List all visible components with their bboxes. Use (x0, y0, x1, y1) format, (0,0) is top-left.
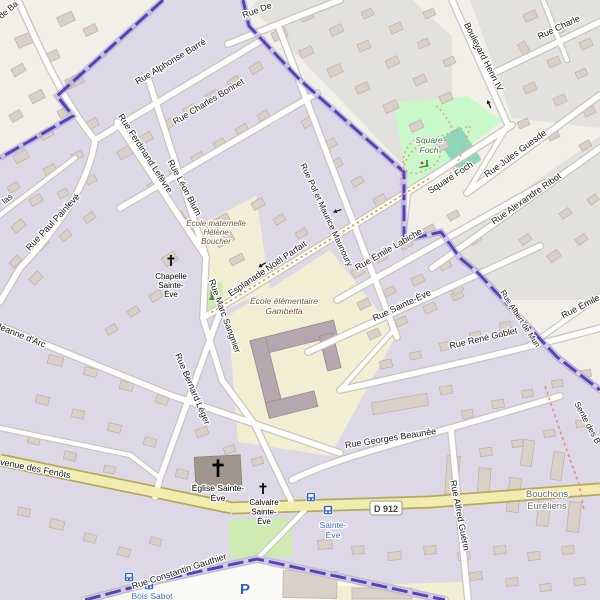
building (506, 577, 519, 586)
ecole-elementaire-label-line: École élémentaire (250, 296, 318, 306)
building (512, 439, 524, 447)
building (562, 545, 575, 554)
ecole-elementaire-label-line: Gambetta (265, 306, 303, 316)
building (461, 409, 473, 418)
locality-bouchons-eureliens-line: Euréliens (527, 501, 567, 512)
square-foch-park-label-line: Foch (420, 145, 439, 155)
building (492, 399, 505, 409)
bus-stop-bois-sabot-label: Bois Sabot (131, 591, 173, 600)
parking-label-line: P (240, 581, 250, 598)
ecole-maternelle-label-line: École maternelle (186, 219, 246, 228)
calvaire-sainte-eve-label-line: Calvaire (249, 498, 279, 507)
building (480, 447, 493, 457)
bus-stop-icon (323, 505, 333, 515)
building (574, 577, 586, 585)
building (522, 389, 534, 397)
building (544, 429, 556, 437)
building (494, 545, 507, 554)
ecole-maternelle-label-line: Hélène (203, 228, 229, 237)
square-foch-park-label-line: Square (415, 135, 443, 145)
map-svg[interactable]: D 912 Rue Alphonse BarréRue Charles Bonn… (0, 0, 600, 600)
building (388, 552, 402, 561)
calvaire-sainte-eve-label-line: Sainte- (251, 508, 277, 517)
ecole-maternelle-label-line: Boucher (201, 237, 231, 246)
building (352, 546, 365, 555)
bus-stop-sainte-eve-label-line: Ève (326, 530, 341, 540)
building (470, 571, 483, 580)
locality-bouchons-eureliens: BouchonsEuréliens (526, 489, 569, 512)
d912-ref: D 912 (374, 504, 398, 514)
locality-bouchons-eureliens-line: Bouchons (526, 489, 569, 500)
building (552, 379, 564, 387)
building (318, 540, 333, 550)
road-badge: D 912 (370, 501, 402, 515)
building (439, 385, 452, 395)
bus-stop-sainte-eve-label-line: Sainte- (320, 520, 347, 530)
chapelle-sainte-eve-label-line: Sainte- (158, 281, 184, 290)
building (540, 583, 552, 591)
parking-label: P (240, 581, 250, 598)
eglise-sainte-eve-label-line: Ève (211, 493, 226, 503)
building (528, 551, 541, 560)
building (424, 545, 437, 554)
chapelle-sainte-eve-label-line: Ève (164, 290, 178, 299)
map-canvas[interactable]: D 912 Rue Alphonse BarréRue Charles Bonn… (0, 0, 600, 600)
eglise-sainte-eve-label-line: Église Sainte- (192, 483, 245, 493)
chapelle-sainte-eve-label-line: Chapelle (155, 272, 187, 281)
bus-stop-bois-sabot-label-line: Bois Sabot (131, 591, 173, 600)
calvaire-sainte-eve-label-line: Ève (257, 517, 271, 526)
bus-stop-icon (306, 492, 316, 502)
